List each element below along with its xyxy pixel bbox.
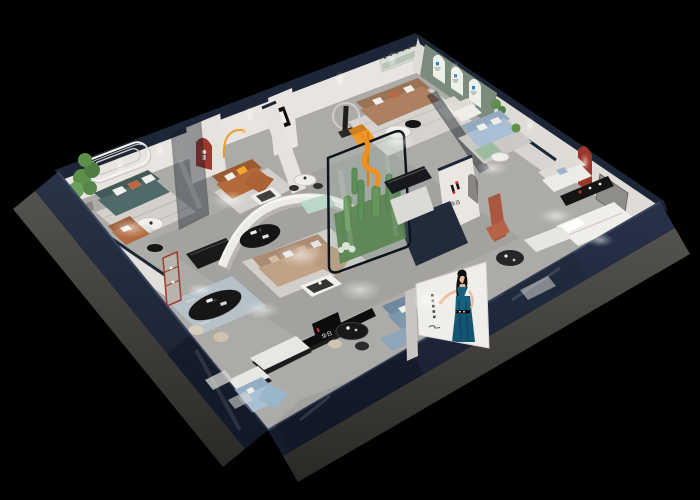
red-display-shelf [163, 252, 181, 306]
stool [189, 325, 204, 335]
glass-panel [172, 122, 208, 228]
render-canvas: 华日 [0, 0, 700, 500]
round-dark-rug [496, 250, 524, 266]
plant [512, 124, 521, 133]
stool [214, 332, 229, 342]
side-table [147, 244, 163, 252]
stool [328, 340, 342, 349]
showroom-render: 华日 [0, 0, 700, 500]
round-display-table [336, 323, 368, 340]
stool [355, 342, 369, 351]
side-table [405, 120, 421, 128]
